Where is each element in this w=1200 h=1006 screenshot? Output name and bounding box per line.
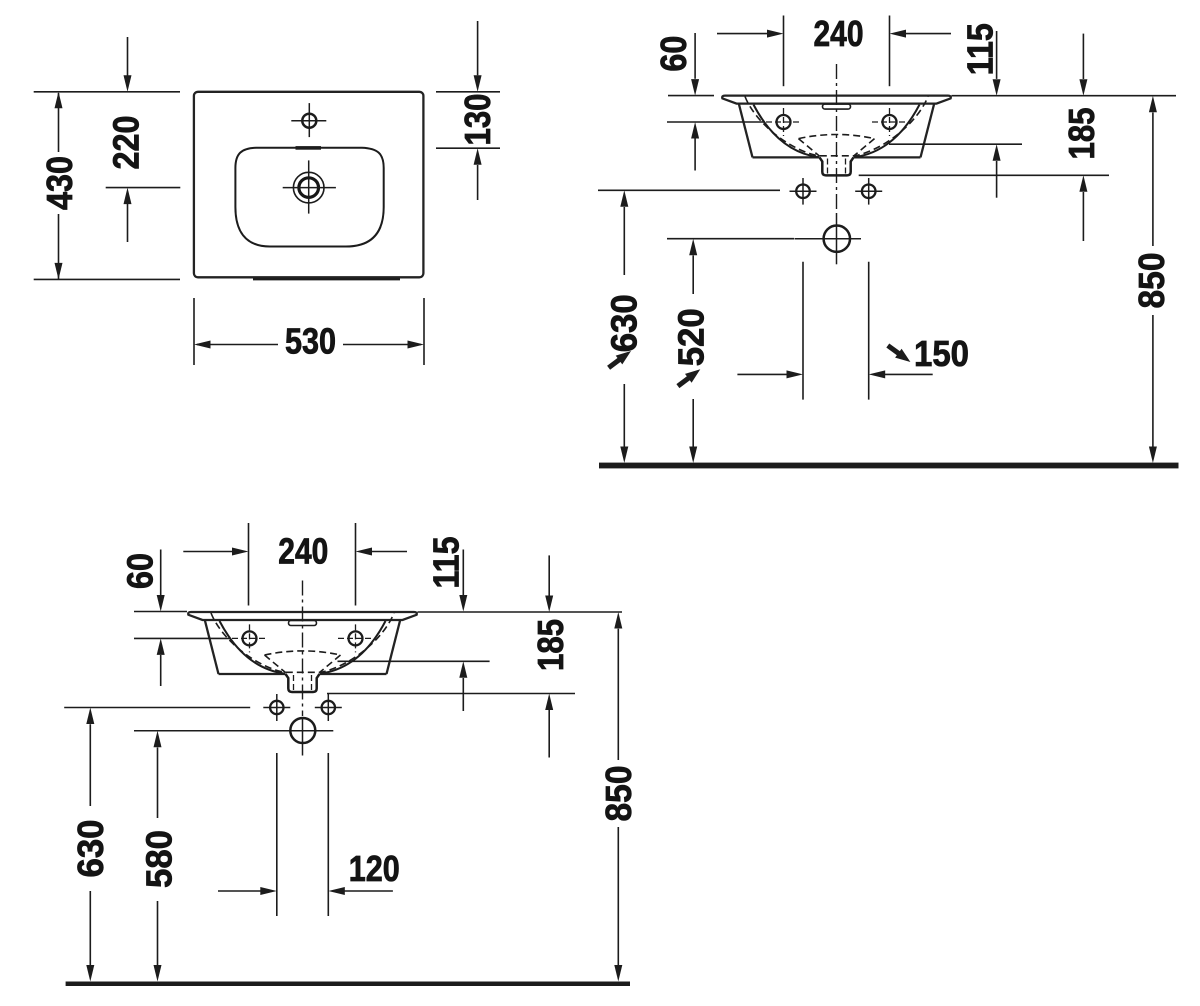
svg-text:115: 115 xyxy=(960,23,1001,75)
svg-text:430: 430 xyxy=(39,156,80,210)
svg-text:240: 240 xyxy=(814,13,864,54)
svg-text:240: 240 xyxy=(278,531,328,572)
svg-text:185: 185 xyxy=(530,619,571,671)
svg-text:530: 530 xyxy=(285,321,336,362)
svg-text:60: 60 xyxy=(120,553,161,589)
svg-text:185: 185 xyxy=(1061,108,1102,160)
svg-text:850: 850 xyxy=(598,766,639,822)
svg-text:130: 130 xyxy=(457,94,498,146)
svg-text:520: 520 xyxy=(671,308,712,366)
svg-text:850: 850 xyxy=(1131,253,1172,309)
svg-text:120: 120 xyxy=(349,848,400,889)
svg-text:630: 630 xyxy=(70,820,111,878)
svg-text:630: 630 xyxy=(604,294,645,352)
svg-text:150: 150 xyxy=(914,333,969,374)
svg-text:115: 115 xyxy=(426,537,467,589)
svg-text:580: 580 xyxy=(139,830,180,888)
svg-text:220: 220 xyxy=(106,116,147,170)
svg-text:60: 60 xyxy=(653,36,694,72)
